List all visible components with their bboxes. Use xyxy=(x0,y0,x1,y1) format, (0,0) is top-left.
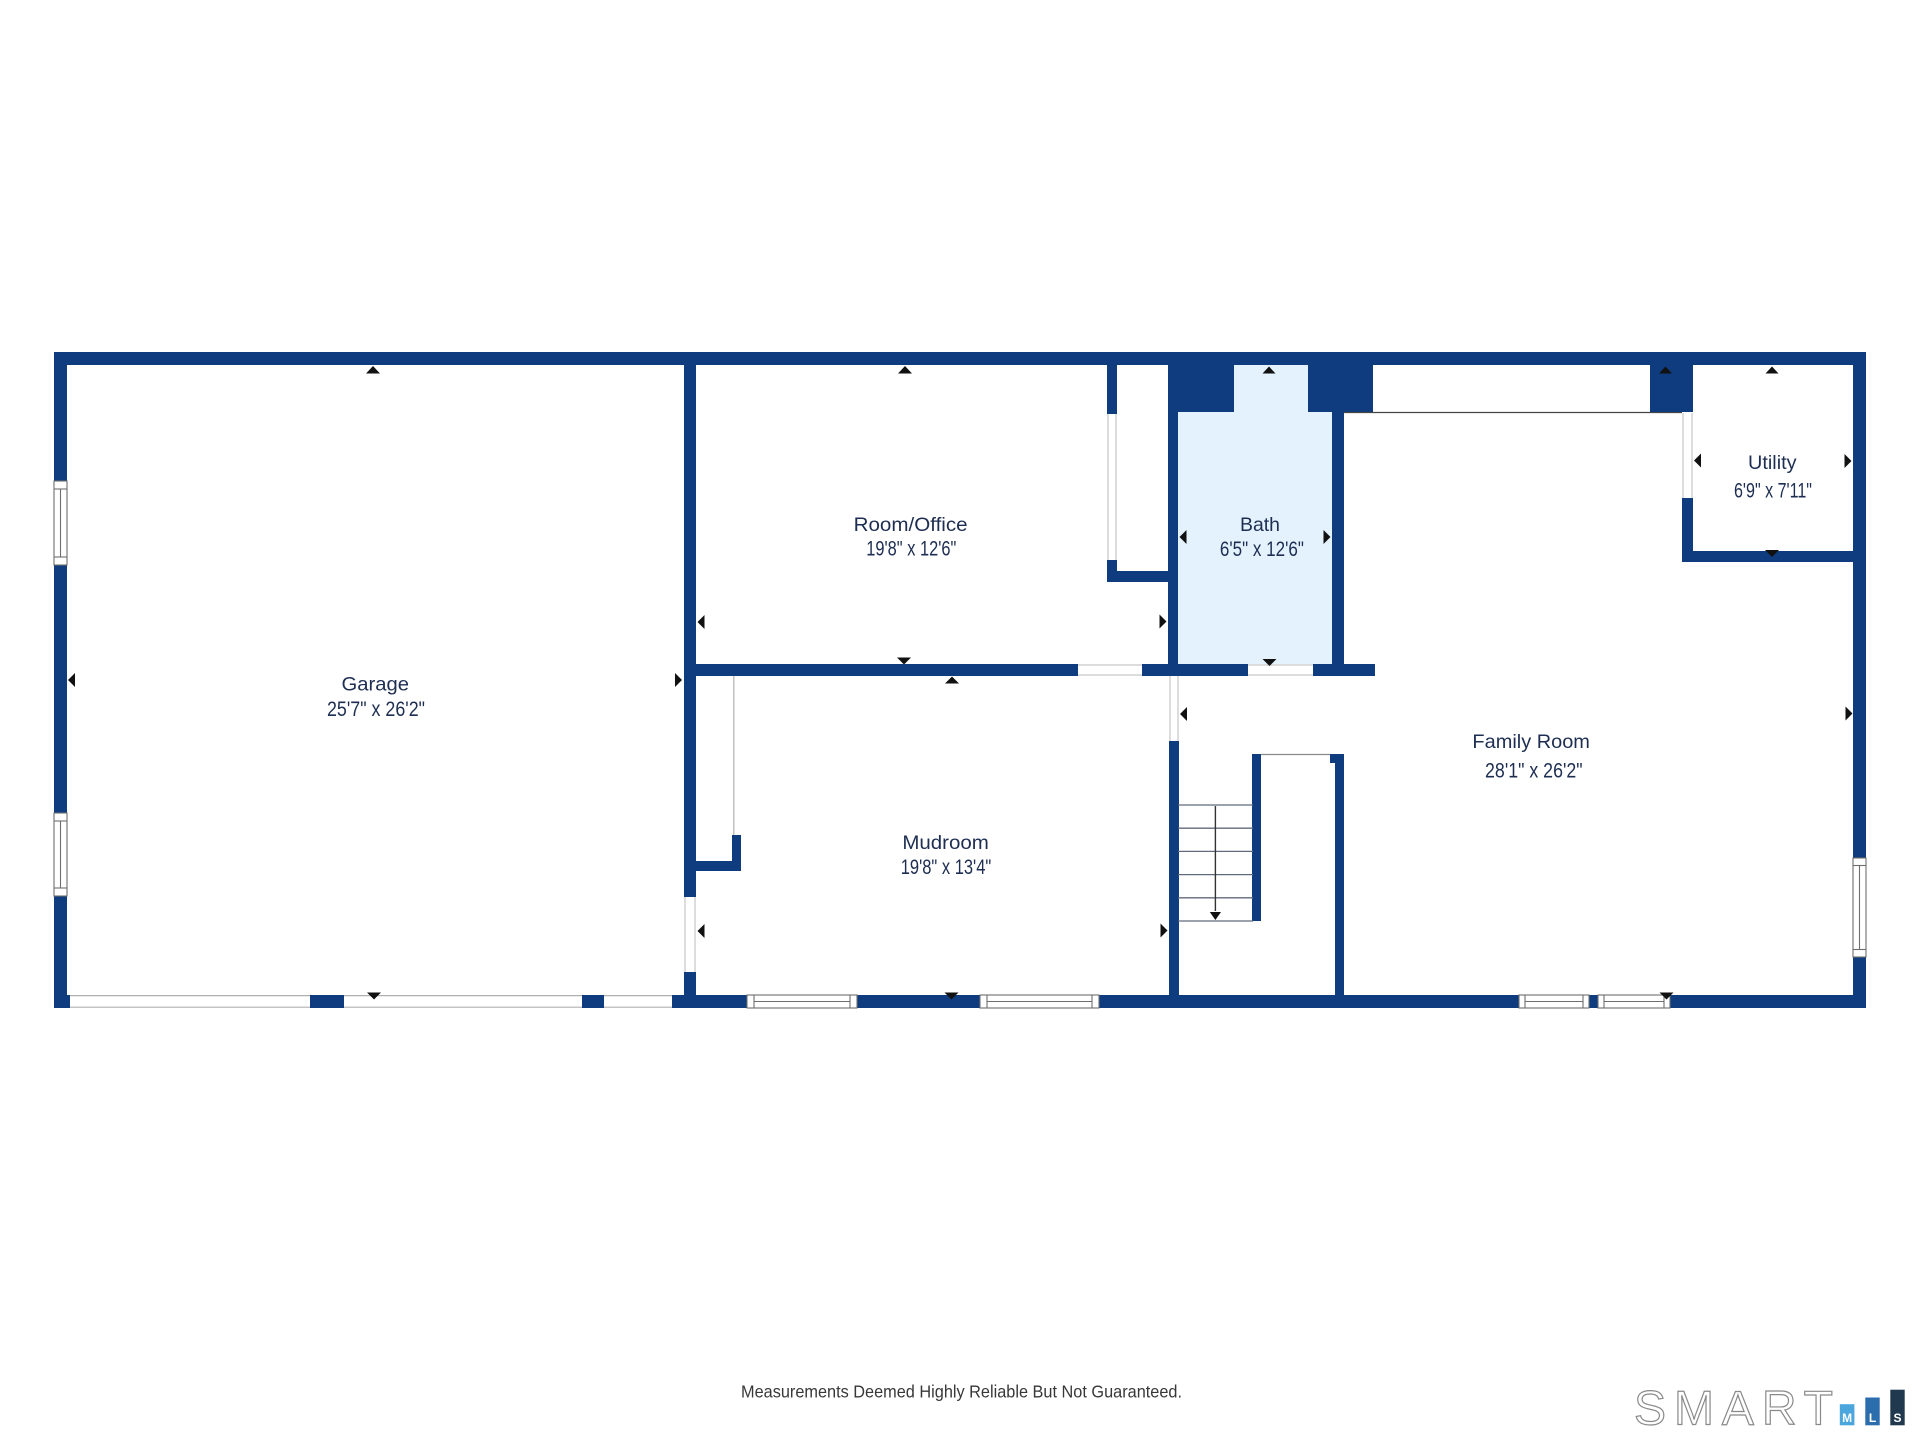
svg-text:S: S xyxy=(1893,1411,1901,1425)
svg-text:Measurements Deemed Highly Rel: Measurements Deemed Highly Reliable But … xyxy=(741,1382,1182,1402)
svg-text:19'8" x 12'6": 19'8" x 12'6" xyxy=(866,537,956,561)
svg-text:6'9" x 7'11": 6'9" x 7'11" xyxy=(1734,479,1812,503)
svg-text:Garage: Garage xyxy=(342,674,410,696)
svg-text:Family Room: Family Room xyxy=(1472,731,1590,753)
svg-text:Bath: Bath xyxy=(1240,514,1280,536)
svg-text:Room/Office: Room/Office xyxy=(854,514,968,536)
svg-text:SMART: SMART xyxy=(1634,1383,1833,1436)
svg-text:L: L xyxy=(1869,1411,1876,1425)
svg-text:M: M xyxy=(1842,1411,1852,1425)
svg-text:19'8" x 13'4": 19'8" x 13'4" xyxy=(901,855,992,879)
svg-text:25'7" x 26'2": 25'7" x 26'2" xyxy=(327,697,425,721)
svg-text:6'5" x 12'6": 6'5" x 12'6" xyxy=(1220,537,1304,561)
svg-text:Mudroom: Mudroom xyxy=(902,832,989,854)
svg-text:Utility: Utility xyxy=(1748,452,1797,474)
svg-text:28'1" x 26'2": 28'1" x 26'2" xyxy=(1485,759,1583,783)
